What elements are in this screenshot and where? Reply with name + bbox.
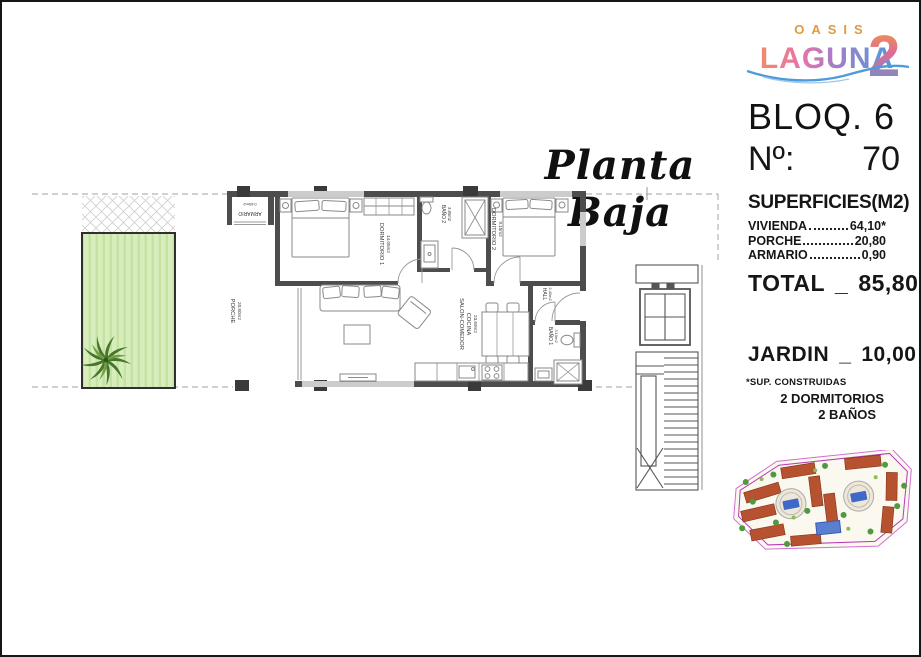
bedrooms-count: 2 DORMITORIOS xyxy=(748,391,884,407)
room-label-bano2: BAÑO 2 xyxy=(440,205,447,224)
oasis-laguna-logo: OASIS LAGUNA 2 xyxy=(735,8,917,94)
dotted-leader xyxy=(809,228,848,230)
armchair xyxy=(397,296,432,330)
room-label-porche: PORCHE xyxy=(229,299,235,324)
jardin-separator: _ xyxy=(839,343,851,367)
dotted-leader xyxy=(803,243,852,245)
row-name: ARMARIO xyxy=(748,248,808,262)
jardin-label: JARDIN xyxy=(748,343,829,367)
room-area-bano2: 3.85m2 xyxy=(447,207,452,222)
room-label-armario: ARMARIO xyxy=(238,210,261,216)
logo-oasis-text: OASIS xyxy=(794,22,869,37)
room-label-dormitorio2: DORMITORIO 2 xyxy=(490,208,496,250)
club-building xyxy=(816,521,841,535)
kitchen-counter xyxy=(415,363,528,381)
room-label-bano1: BAÑO 1 xyxy=(547,327,554,346)
furniture xyxy=(280,197,582,384)
coffee-table xyxy=(344,325,370,344)
table-row: VIVIENDA 64,10* xyxy=(748,219,886,234)
surface-rows: VIVIENDA 64,10* PORCHE 20,80 ARMARIO 0,9… xyxy=(748,219,886,263)
footnote: *SUP. CONSTRUIDAS xyxy=(746,377,846,388)
rooms-count: 2 DORMITORIOS 2 BAÑOS xyxy=(748,391,884,423)
stove-icon xyxy=(482,365,502,380)
row-name: VIVIENDA xyxy=(748,219,807,233)
unit-number-value: 70 xyxy=(862,140,900,179)
room-area-salon: 23.69m2 xyxy=(473,315,478,333)
stairwell-block xyxy=(636,265,702,490)
block-label: BLOQ. 6 xyxy=(748,98,900,136)
logo-two-text: 2 xyxy=(868,24,900,89)
tv-unit xyxy=(340,374,376,381)
total-value: 85,80 xyxy=(858,270,918,297)
floor-plan: DORMITORIO 1 14.05m2 DORMITORIO 2 9.15m2… xyxy=(30,184,720,517)
bathrooms-count: 2 BAÑOS xyxy=(748,407,884,423)
room-area-dormitorio1: 14.05m2 xyxy=(386,235,391,253)
room-label-salon-2: COCINA xyxy=(465,313,471,336)
site-plan-map xyxy=(727,450,919,558)
dotted-leader xyxy=(810,257,860,259)
table-row: PORCHE 20,80 xyxy=(748,234,886,249)
sofa xyxy=(320,285,400,311)
row-value: 64,10* xyxy=(850,219,886,233)
brochure-page: OASIS LAGUNA 2 BLOQ. 6 Nº: 70 SUPERFICIE… xyxy=(0,0,921,657)
room-area-bano1: 3.15m2 xyxy=(554,329,559,343)
room-area-porche: 20.80m2 xyxy=(237,302,242,320)
hatched-area xyxy=(82,196,175,233)
unit-info: BLOQ. 6 Nº: 70 xyxy=(748,98,900,179)
stairs-icon xyxy=(636,265,702,490)
surface-table: SUPERFICIES(M2) VIVIENDA 64,10* PORCHE 2… xyxy=(748,192,918,297)
unit-number-row: Nº: 70 xyxy=(748,140,900,179)
closet-dormitorio1 xyxy=(364,198,414,215)
total-row: TOTAL _ 85,80 xyxy=(748,270,918,297)
total-label: TOTAL xyxy=(748,270,825,297)
dining-set xyxy=(482,303,529,365)
surface-table-title: SUPERFICIES(M2) xyxy=(748,192,918,214)
room-area-dormitorio2: 9.15m2 xyxy=(498,221,503,237)
table-row: ARMARIO 0,90 xyxy=(748,248,886,263)
room-label-hall: HALL xyxy=(541,288,547,301)
room-area-armario: 0.60m2 xyxy=(243,202,257,207)
total-separator: _ xyxy=(835,270,848,297)
bathroom2-fixtures xyxy=(420,197,488,268)
row-value: 20,80 xyxy=(855,234,886,248)
unit-number-label: Nº: xyxy=(748,140,794,179)
room-label-dormitorio1: DORMITORIO 1 xyxy=(378,223,384,265)
row-name: PORCHE xyxy=(748,234,801,248)
jardin-row: JARDIN _ 10,00 xyxy=(748,343,916,367)
room-area-hall: 2.40m2 xyxy=(548,287,553,301)
jardin-value: 10,00 xyxy=(861,343,916,367)
bed-dormitorio1 xyxy=(280,198,362,257)
room-label-salon-1: SALON-COMEDOR xyxy=(458,298,464,350)
elevator-icon xyxy=(640,284,690,345)
row-value: 0,90 xyxy=(862,248,886,262)
garden xyxy=(81,233,175,388)
